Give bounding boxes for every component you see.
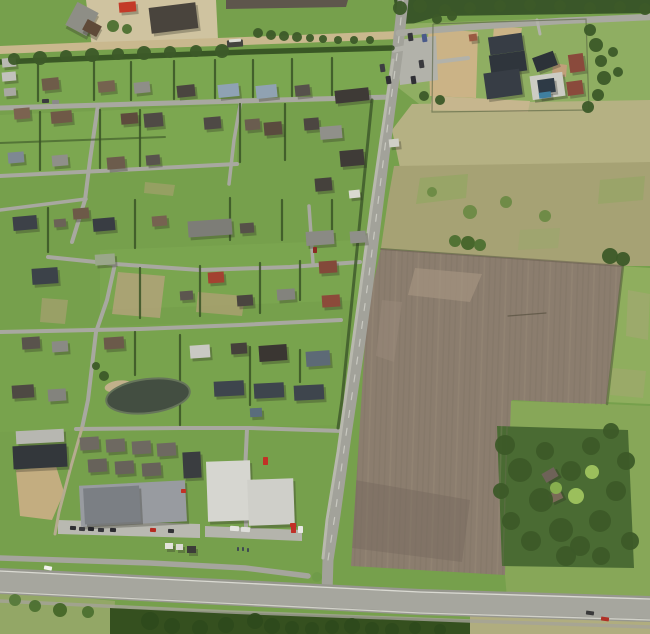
building: [231, 342, 248, 354]
tree: [137, 46, 151, 60]
building: [206, 460, 252, 521]
vehicle: [237, 547, 239, 551]
vehicle: [313, 247, 317, 253]
tree: [253, 28, 263, 38]
building: [54, 218, 67, 227]
building: [180, 291, 194, 301]
building: [92, 217, 115, 232]
scrub-mottle: [598, 176, 645, 204]
building: [95, 253, 116, 265]
tree: [500, 196, 512, 208]
building: [41, 77, 59, 91]
aerial-photo[interactable]: [0, 0, 650, 634]
aerial-map-svg: [0, 0, 650, 634]
tree: [589, 38, 603, 52]
building: [319, 125, 342, 140]
building: [187, 218, 232, 237]
building: [277, 288, 296, 300]
building: [104, 336, 125, 349]
building: [80, 436, 100, 450]
building: [107, 156, 126, 170]
building: [350, 230, 367, 243]
building: [389, 138, 400, 147]
building: [187, 546, 196, 553]
vehicle: [52, 100, 59, 104]
tree: [521, 531, 541, 551]
tree: [141, 612, 159, 630]
tree: [33, 51, 47, 65]
tree: [427, 187, 437, 197]
building: [2, 71, 17, 81]
building: [22, 336, 41, 349]
building: [12, 215, 37, 231]
tree: [554, 0, 566, 12]
tree: [474, 239, 486, 251]
building: [12, 384, 35, 399]
vehicle: [298, 526, 303, 533]
building: [182, 452, 201, 479]
building: [31, 267, 58, 285]
vehicle: [42, 99, 49, 103]
building: [208, 271, 225, 283]
building: [48, 388, 67, 401]
building: [142, 462, 162, 476]
building: [176, 544, 183, 550]
vehicle: [263, 457, 268, 465]
tree: [9, 594, 21, 606]
tree: [107, 20, 119, 32]
building: [115, 460, 135, 474]
tree: [164, 618, 180, 634]
tree: [536, 442, 554, 460]
tree: [539, 210, 551, 222]
tree: [190, 45, 202, 57]
building: [306, 230, 335, 246]
building: [157, 442, 177, 456]
building: [52, 154, 69, 166]
building: [483, 69, 522, 100]
tree: [8, 53, 20, 65]
vehicle: [181, 489, 186, 493]
tree: [582, 101, 594, 113]
building: [339, 149, 364, 167]
building: [306, 350, 331, 367]
tree: [419, 91, 429, 101]
tree: [215, 44, 229, 58]
tree: [556, 546, 576, 566]
lawn-patch: [0, 318, 345, 432]
building: [250, 408, 262, 418]
building: [133, 81, 150, 94]
tree: [508, 458, 532, 482]
tree: [461, 236, 475, 250]
tree: [568, 488, 584, 504]
building: [146, 154, 161, 165]
building: [304, 117, 320, 130]
building: [322, 294, 341, 307]
building: [217, 83, 239, 98]
building: [52, 340, 69, 352]
tree: [606, 481, 626, 501]
building: [165, 543, 173, 549]
building: [245, 118, 261, 130]
building: [469, 33, 478, 41]
building: [97, 80, 115, 93]
vehicle: [230, 526, 239, 531]
tree: [435, 95, 445, 105]
building: [88, 458, 108, 472]
building: [190, 344, 211, 358]
tree: [312, 572, 322, 582]
tree: [464, 2, 476, 14]
tree: [319, 35, 327, 43]
building: [8, 151, 25, 163]
vehicle: [247, 548, 249, 552]
tree: [266, 30, 276, 40]
tree: [493, 483, 509, 499]
building: [16, 429, 65, 444]
tree: [432, 14, 442, 24]
building: [254, 382, 285, 399]
tree: [621, 532, 639, 550]
tree: [494, 0, 506, 12]
building: [568, 53, 585, 73]
tree: [279, 31, 289, 41]
tree: [292, 32, 302, 42]
vehicle: [70, 526, 76, 530]
tree: [325, 620, 339, 634]
building: [121, 112, 139, 124]
building: [319, 260, 338, 273]
tree: [463, 205, 477, 219]
tree: [529, 488, 553, 512]
vehicle: [150, 528, 156, 532]
tree: [585, 465, 599, 479]
dirt-garden: [40, 298, 68, 324]
tree: [247, 613, 263, 629]
vehicle: [110, 528, 116, 532]
tree: [584, 2, 596, 14]
tree: [595, 55, 607, 67]
tree: [614, 1, 626, 13]
building: [4, 87, 17, 96]
tree: [502, 512, 520, 530]
vehicle: [291, 526, 296, 533]
building: [83, 486, 141, 525]
tree: [602, 248, 618, 264]
tree: [592, 89, 604, 101]
pasture-mottle: [610, 368, 646, 398]
building: [73, 207, 90, 219]
tree: [29, 600, 41, 612]
tree: [122, 24, 132, 34]
tree: [366, 36, 374, 44]
vehicle: [242, 547, 244, 551]
building: [106, 438, 126, 452]
vehicle: [88, 527, 94, 531]
tree: [112, 48, 124, 60]
tree: [549, 518, 573, 542]
building: [204, 116, 222, 129]
building: [247, 478, 295, 526]
building: [537, 78, 556, 94]
tree: [613, 67, 623, 77]
building: [314, 177, 332, 191]
tree: [592, 547, 610, 565]
vehicle: [241, 527, 250, 532]
building: [119, 1, 137, 12]
vehicle: [79, 527, 85, 531]
tree: [334, 36, 342, 44]
building: [294, 84, 310, 97]
tree: [60, 50, 72, 62]
vehicle: [290, 523, 296, 527]
building: [258, 344, 287, 362]
building: [12, 444, 67, 470]
dirt-garden: [112, 272, 165, 318]
building: [237, 294, 254, 306]
tree: [550, 482, 562, 494]
building: [349, 189, 361, 198]
tree: [350, 36, 358, 44]
tree: [603, 423, 619, 439]
tree: [264, 618, 280, 634]
building: [176, 84, 195, 98]
tree: [616, 252, 630, 266]
building: [263, 121, 282, 136]
building: [132, 440, 152, 454]
tree: [164, 46, 176, 58]
tree: [218, 617, 234, 633]
tree: [608, 47, 618, 57]
tree: [82, 606, 94, 618]
building: [51, 110, 73, 124]
building: [143, 112, 163, 128]
tree: [92, 362, 100, 370]
vehicle: [168, 529, 174, 533]
tree: [582, 437, 600, 455]
building: [214, 380, 245, 397]
building: [152, 215, 168, 226]
scrub-mottle: [518, 228, 560, 250]
pasture-mottle: [626, 290, 650, 340]
tree: [409, 622, 421, 634]
tree: [85, 48, 99, 62]
building: [240, 223, 255, 234]
tree: [561, 461, 581, 481]
tree: [617, 452, 635, 470]
building: [255, 84, 277, 99]
tree: [495, 435, 515, 455]
tree: [597, 71, 611, 85]
tree: [449, 235, 461, 247]
building: [294, 384, 325, 401]
tree: [99, 371, 109, 381]
vehicle: [98, 528, 104, 532]
building: [14, 107, 31, 119]
tree: [344, 618, 360, 634]
tree: [447, 11, 457, 21]
building: [566, 80, 584, 96]
tree: [53, 603, 67, 617]
tree: [306, 34, 314, 42]
tree: [589, 510, 611, 532]
tree: [584, 24, 596, 36]
tree: [393, 1, 407, 15]
